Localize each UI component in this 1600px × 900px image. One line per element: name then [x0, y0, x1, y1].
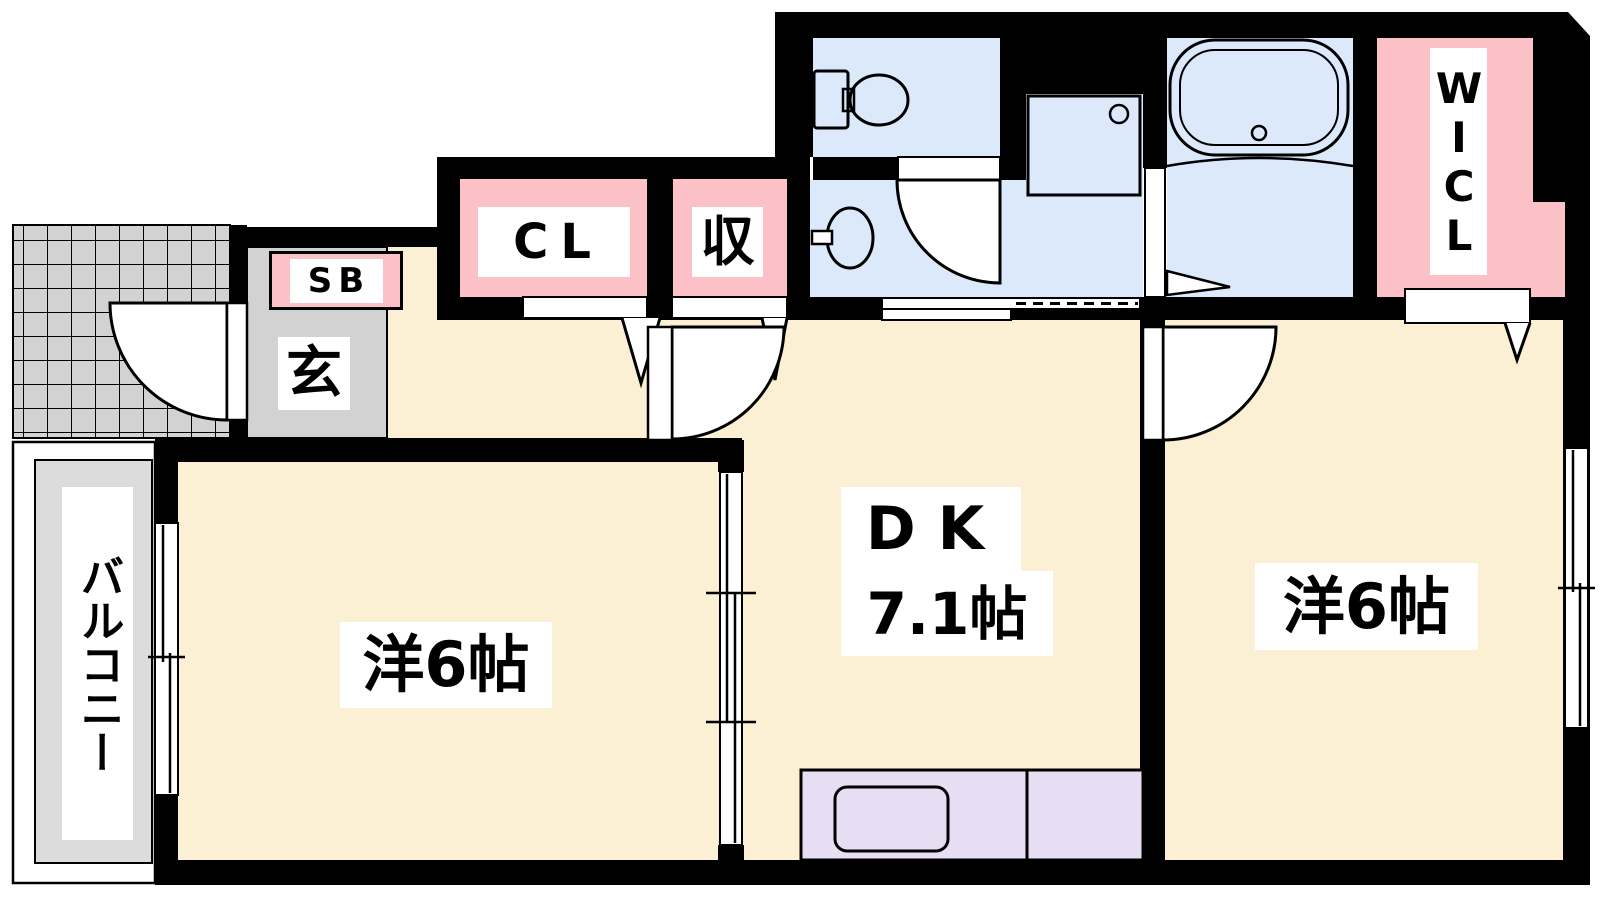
wall	[1026, 12, 1143, 94]
western-room-left-label: 洋6帖	[340, 622, 552, 708]
closet-shu-door-track	[672, 297, 787, 318]
partition-sliding-doors	[720, 472, 742, 845]
wall	[1533, 12, 1590, 202]
wall	[775, 12, 1590, 38]
wall	[775, 12, 813, 157]
wall	[1000, 38, 1026, 157]
wall	[718, 440, 744, 472]
shoe-box: SB	[269, 251, 403, 310]
closet-shu-label: 収	[692, 207, 763, 277]
floorplan-drawing	[0, 0, 1600, 900]
wall	[1143, 12, 1167, 168]
western-room-right-label: 洋6帖	[1255, 563, 1478, 650]
dk-size-label: 7.1帖	[841, 571, 1053, 656]
room-bath-floor	[1167, 38, 1353, 297]
closet-cl-door-track	[523, 297, 647, 318]
wall	[155, 462, 178, 523]
balcony-label: バルコニー	[62, 487, 133, 840]
wall	[227, 227, 447, 247]
western-right-door-leaf	[1143, 327, 1163, 440]
wall	[155, 438, 742, 462]
wicl-door-track	[1405, 289, 1530, 323]
bath-door-channel	[1145, 168, 1165, 297]
entrance-label: 玄	[278, 337, 350, 410]
floorplan-canvas: SB 玄 CL 収 WICL バルコニー 洋6帖 DK 7.1帖 洋6帖	[0, 0, 1600, 900]
washroom-sliding-door-panel	[882, 309, 1011, 320]
closet-cl-label: CL	[478, 207, 630, 277]
wall	[718, 845, 744, 862]
wall	[155, 795, 178, 862]
wicl-label: WICL	[1430, 48, 1487, 275]
room-wicl-floor-ext	[1533, 202, 1565, 297]
shoe-box-label: SB	[290, 259, 383, 303]
toilet-doorway	[898, 157, 1000, 180]
wall	[1353, 38, 1377, 297]
entrance-door-leaf	[227, 303, 247, 420]
dk-door-leaf	[648, 327, 672, 440]
wall	[1011, 309, 1140, 320]
wall	[155, 860, 1590, 885]
dk-label: DK	[841, 487, 1021, 571]
kitchen-counter	[801, 770, 1143, 860]
